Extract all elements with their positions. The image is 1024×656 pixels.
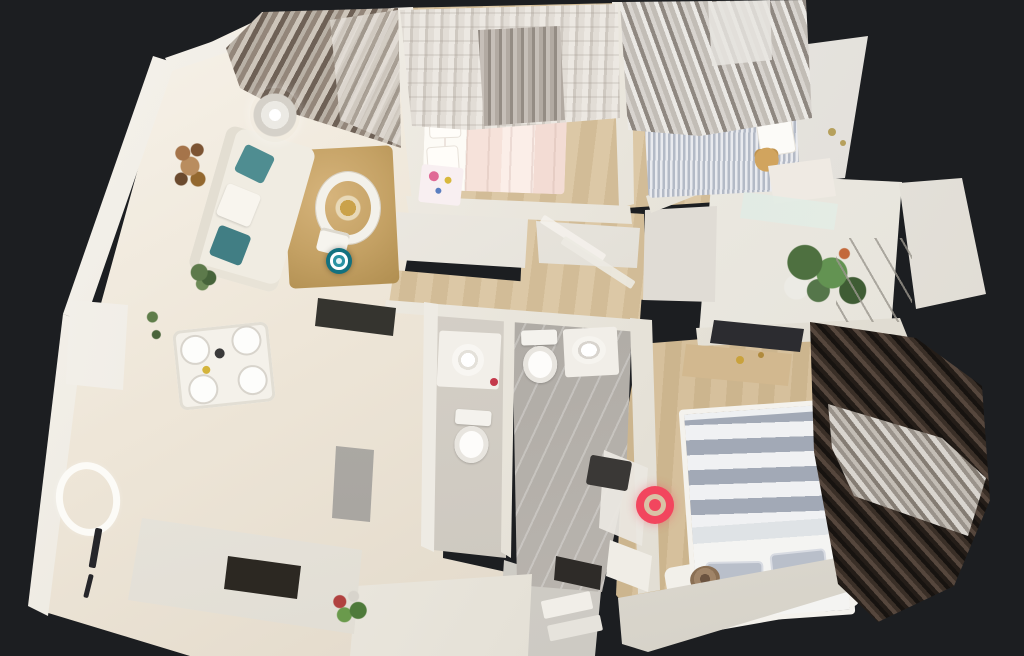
place-setting: [236, 364, 269, 397]
dining-table: [172, 321, 276, 411]
wall-butterfly-decor: [828, 128, 836, 136]
waypoint-marker[interactable]: [326, 248, 352, 274]
toy: [428, 171, 439, 182]
toilet: [517, 329, 561, 392]
current-position-gap-ring: [644, 494, 666, 516]
teal-cushion: [234, 143, 276, 184]
dollhouse-3d-view[interactable]: [0, 0, 1024, 656]
gold-decor: [758, 352, 764, 358]
toilet-bowl: [453, 425, 489, 464]
current-position-center: [649, 499, 662, 512]
current-position-marker[interactable]: [636, 486, 674, 524]
toilet: [448, 409, 496, 464]
toilet-bowl: [522, 345, 557, 383]
bathroom-vanity: [563, 327, 619, 378]
toilet-tank: [455, 409, 492, 426]
toilet-tank: [521, 329, 558, 345]
white-cushion: [215, 183, 261, 228]
circular-wall-art: [170, 138, 210, 192]
table-utensil: [214, 348, 225, 359]
nightstand: [418, 164, 464, 206]
wall-butterfly-decor: [840, 140, 846, 146]
red-accessory: [490, 378, 498, 386]
place-setting: [179, 333, 212, 366]
waypoint-marker-center: [336, 258, 342, 264]
place-setting: [187, 373, 220, 406]
drying-rack: [836, 238, 912, 322]
chandelier: [250, 88, 300, 142]
basin: [571, 335, 606, 365]
plant-sprigs: [142, 306, 168, 350]
gold-decor: [736, 356, 744, 364]
place-setting: [230, 324, 263, 357]
waypoint-marker-inner: [333, 255, 344, 266]
floor-plant: [188, 258, 220, 294]
table-item: [202, 365, 211, 374]
round-basin: [451, 343, 485, 377]
waypoint-marker-ring: [330, 252, 347, 269]
flower-arrangement: [326, 584, 372, 628]
toy: [435, 187, 442, 194]
toy: [444, 176, 452, 184]
